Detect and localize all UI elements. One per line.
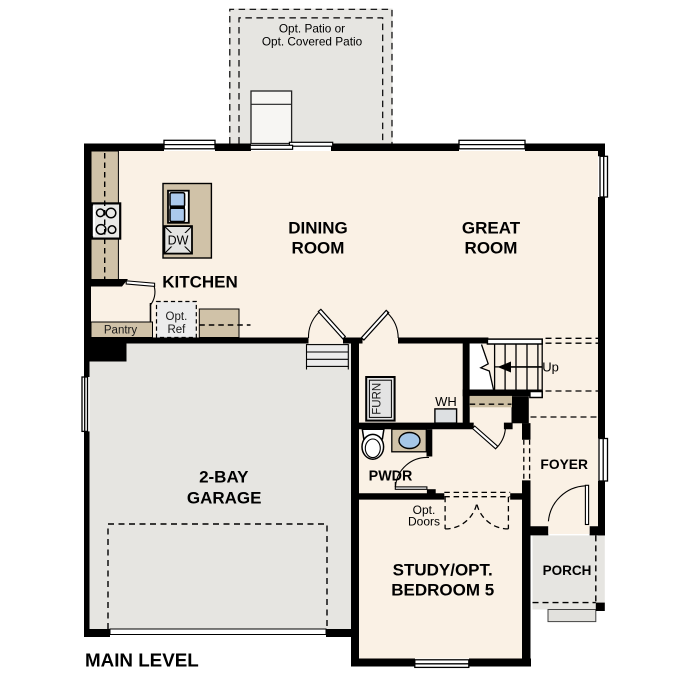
- svg-text:Up: Up: [542, 360, 559, 375]
- svg-text:BEDROOM 5: BEDROOM 5: [391, 581, 494, 600]
- svg-text:GARAGE: GARAGE: [187, 489, 262, 508]
- svg-text:Doors: Doors: [408, 515, 440, 529]
- svg-text:ROOM: ROOM: [292, 238, 345, 257]
- svg-text:MAIN LEVEL: MAIN LEVEL: [85, 650, 199, 671]
- svg-text:DINING: DINING: [288, 219, 348, 238]
- svg-text:Pantry: Pantry: [104, 325, 137, 337]
- svg-text:GREAT: GREAT: [462, 219, 521, 238]
- svg-text:WH: WH: [435, 394, 457, 409]
- svg-text:PWDR: PWDR: [369, 469, 413, 485]
- svg-text:KITCHEN: KITCHEN: [162, 272, 238, 291]
- svg-text:FURN: FURN: [371, 383, 383, 415]
- svg-text:Opt. Covered Patio: Opt. Covered Patio: [262, 35, 363, 49]
- svg-text:2-BAY: 2-BAY: [199, 467, 249, 486]
- svg-text:Ref: Ref: [167, 324, 186, 336]
- svg-text:STUDY/OPT.: STUDY/OPT.: [393, 560, 493, 579]
- svg-text:FOYER: FOYER: [540, 457, 588, 472]
- svg-text:DW: DW: [168, 233, 189, 247]
- svg-text:ROOM: ROOM: [465, 238, 518, 257]
- svg-text:PORCH: PORCH: [543, 563, 592, 578]
- svg-text:Opt. Patio or: Opt. Patio or: [279, 22, 345, 36]
- svg-text:Opt.: Opt.: [166, 311, 188, 323]
